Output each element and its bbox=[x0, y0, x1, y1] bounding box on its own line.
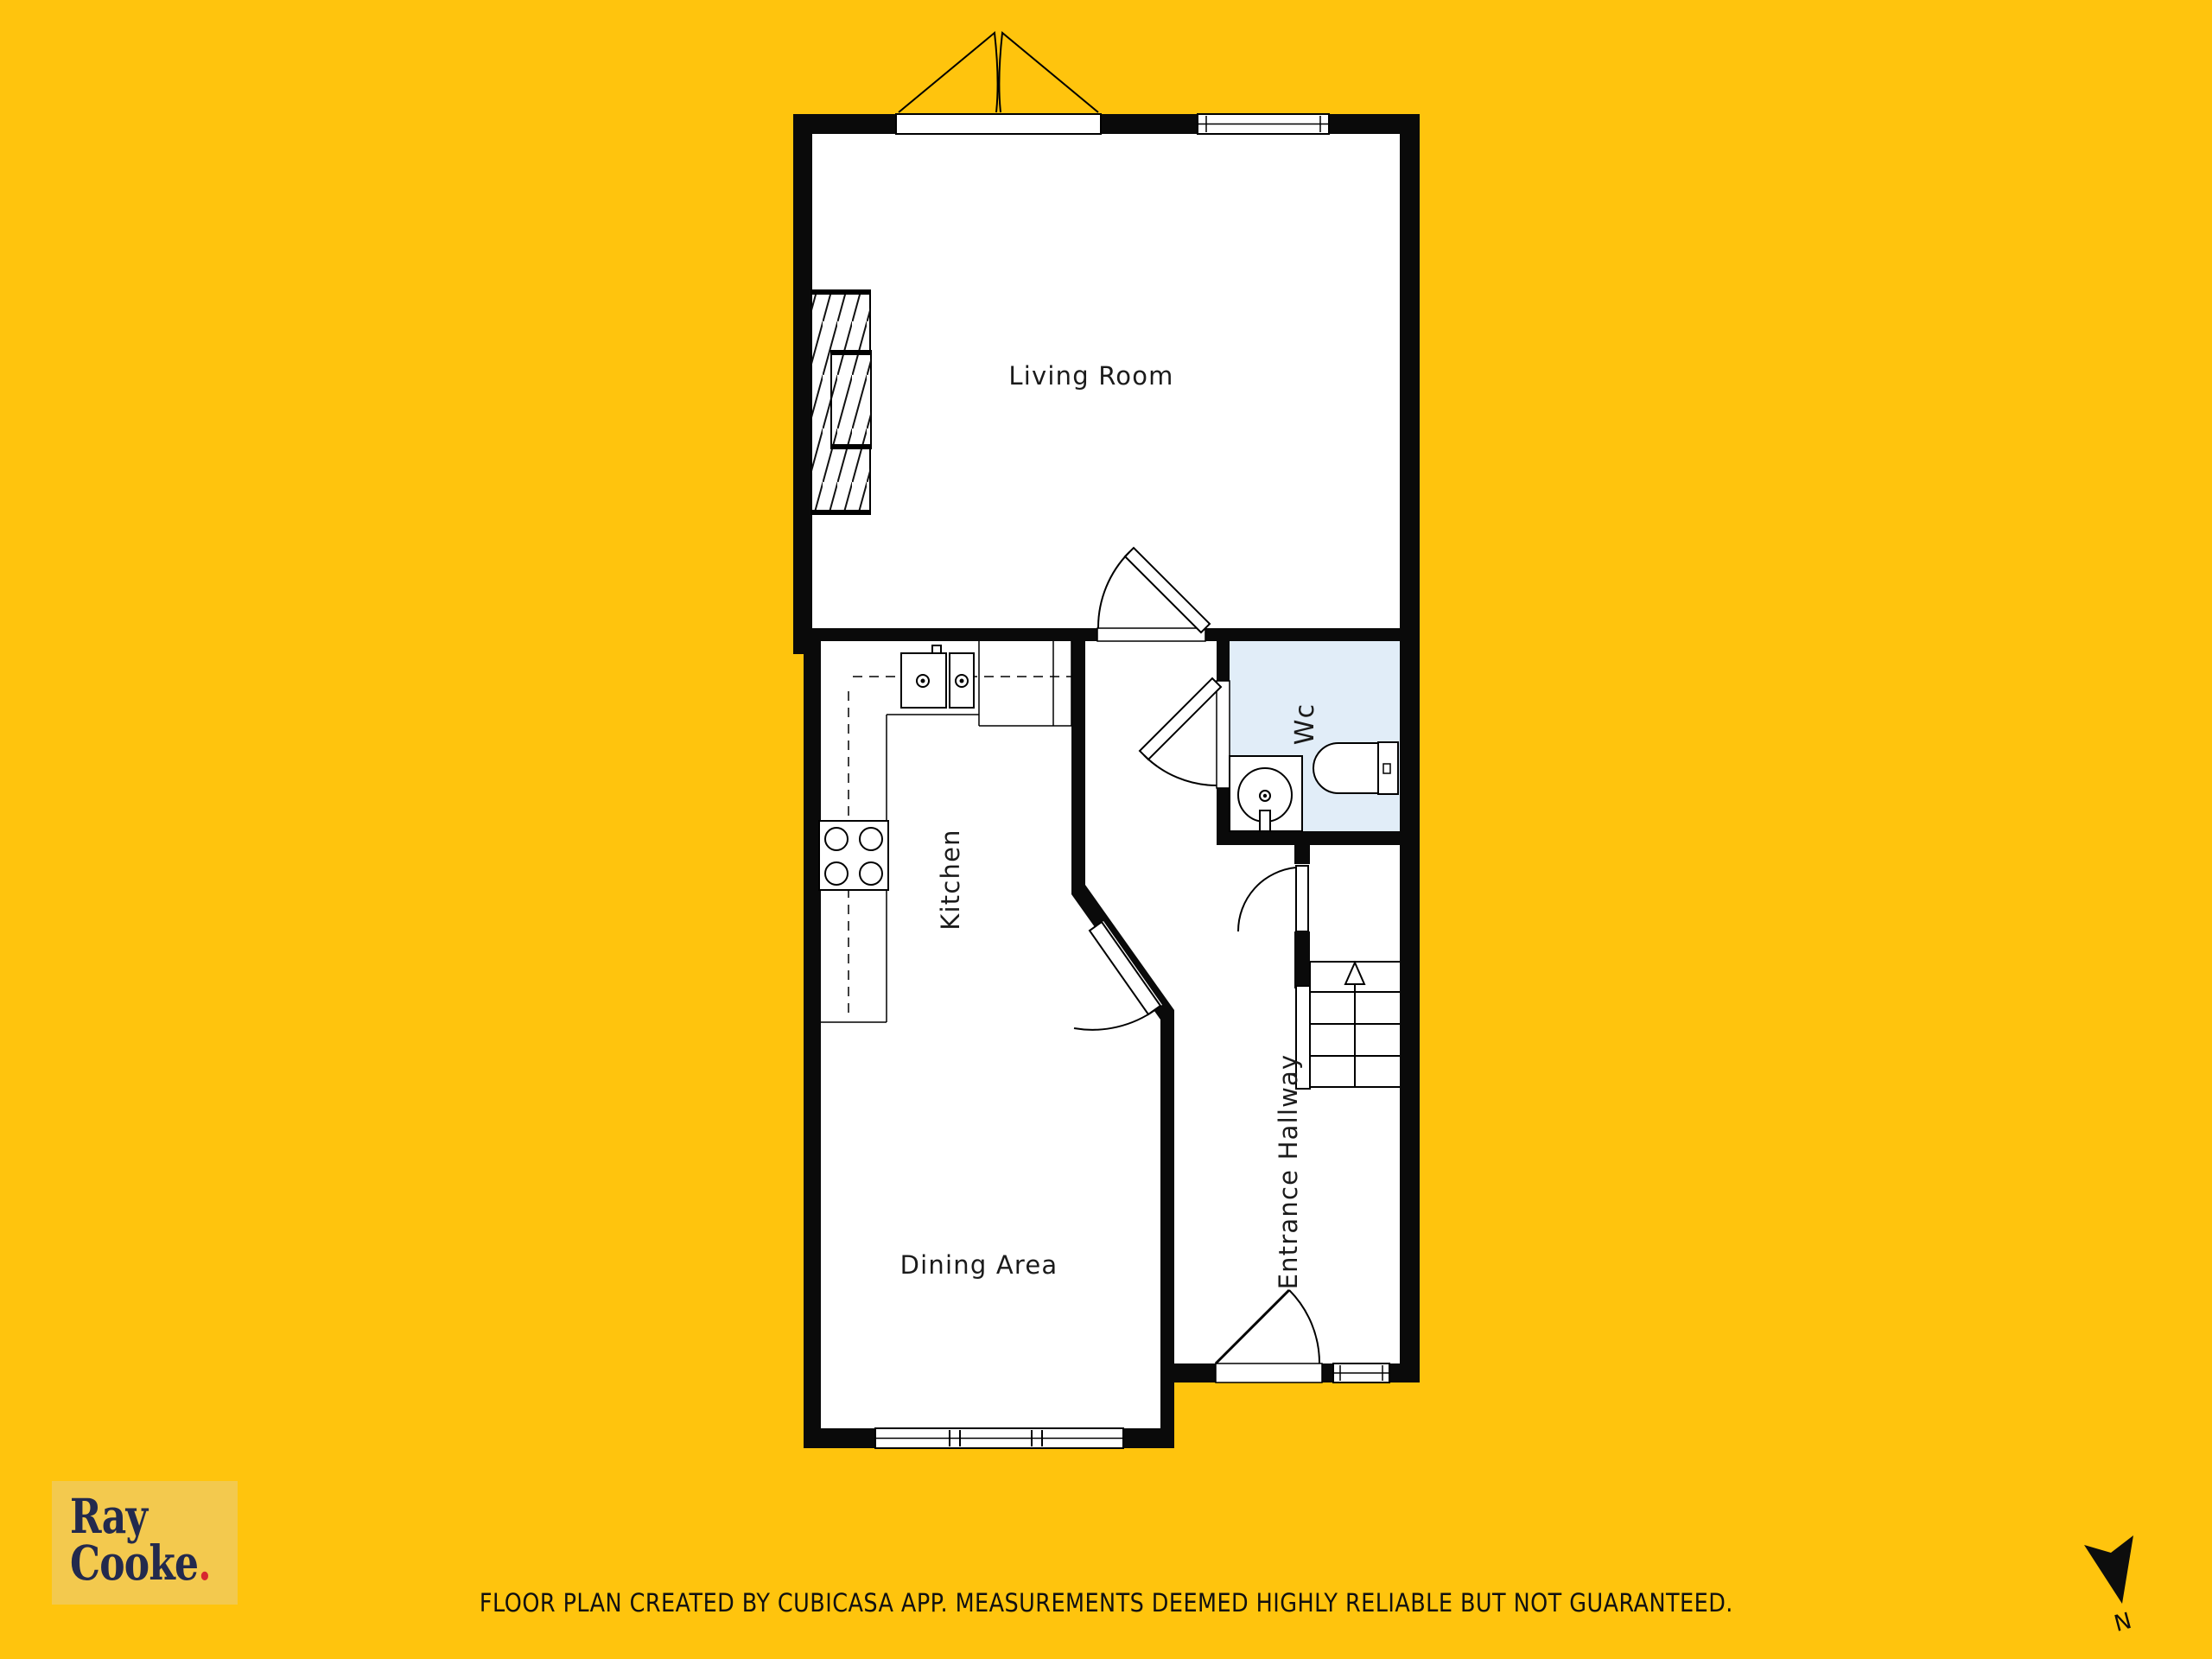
logo-period: . bbox=[198, 1535, 211, 1591]
wc-sink-icon bbox=[1230, 756, 1302, 831]
agency-logo: Ray Cooke. bbox=[52, 1481, 238, 1605]
dining-area-label: Dining Area bbox=[900, 1250, 1058, 1280]
disclaimer-bar: FLOOR PLAN CREATED BY CUBICASA APP. MEAS… bbox=[0, 1588, 2212, 1618]
logo-line2: Cooke bbox=[70, 1535, 198, 1591]
stove-icon bbox=[819, 821, 888, 890]
fireplace-symbol bbox=[811, 290, 871, 514]
wall-stub-upper bbox=[1294, 845, 1310, 864]
living-room-label: Living Room bbox=[1008, 361, 1173, 391]
disclaimer-text: FLOOR PLAN CREATED BY CUBICASA APP. MEAS… bbox=[480, 1588, 1733, 1618]
kitchen-sink-icon bbox=[901, 645, 974, 708]
wc-label: Wc bbox=[1290, 703, 1320, 746]
north-arrow-icon: N bbox=[2084, 1535, 2134, 1637]
dining-window-icon bbox=[875, 1428, 1123, 1448]
living-room-window-icon bbox=[1198, 114, 1329, 134]
wall-stub-lower bbox=[1294, 931, 1310, 988]
toilet-icon bbox=[1313, 742, 1398, 794]
entrance-hallway-label: Entrance Hallway bbox=[1274, 1054, 1303, 1290]
french-door-symbol bbox=[896, 33, 1101, 134]
floor-plan: Living Room Kitchen Dining Area Entrance… bbox=[0, 0, 2212, 1659]
kitchen-label: Kitchen bbox=[936, 829, 965, 930]
hallway-window-icon bbox=[1333, 1363, 1389, 1382]
floor-plan-page: Living Room Kitchen Dining Area Entrance… bbox=[0, 0, 2212, 1659]
